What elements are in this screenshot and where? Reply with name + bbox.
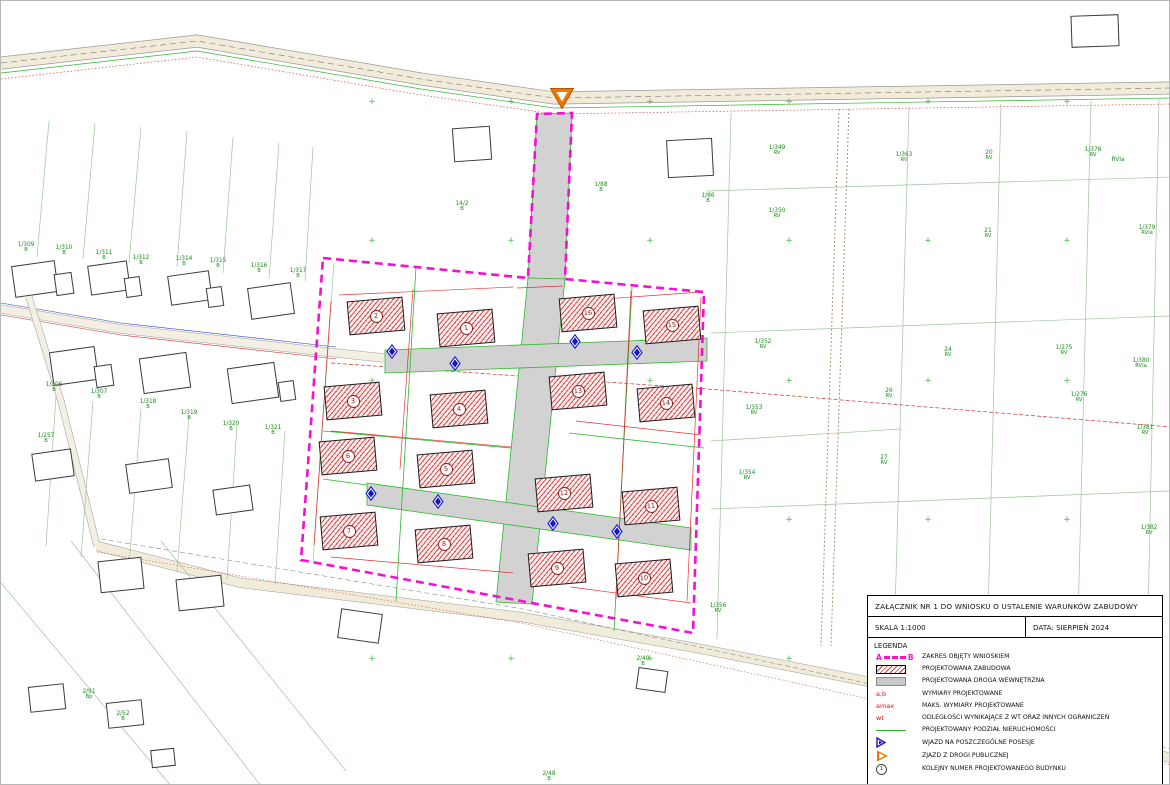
legend-item-label: KOLEJNY NUMER PROJEKTOWANEGO BUDYNKU [922,766,1156,773]
dashed-range-line [884,656,906,659]
legend-items: AB ZAKRES OBJĘTY WNIOSKIEM PROJEKTOWANA … [874,652,1156,775]
green-line-swatch [876,730,906,731]
legend-item: PROJEKTOWANA ZABUDOWA [874,664,1156,675]
legend-symbol: AB [874,653,922,662]
legend-item: PROJEKTOWANY PODZIAŁ NIERUCHOMOŚCI [874,725,1156,736]
legend-item-label: ODLEGŁOŚCI WYNIKAJĄCE Z WT ORAZ INNYCH O… [922,715,1156,722]
road-swatch [876,677,906,686]
legend-symbol: 1 [874,764,922,775]
legend-item: amax MAKS. WYMIARY PROJEKTOWANE [874,701,1156,712]
legend-symbol [874,737,922,748]
legend-symbol [874,665,922,674]
legend-symbol [874,730,922,731]
legend-item: wt ODLEGŁOŚCI WYNIKAJĄCE Z WT ORAZ INNYC… [874,713,1156,724]
legend-item: WJAZD NA POSZCZEGÓLNE POSESJE [874,737,1156,748]
legend-item-label: ZAKRES OBJĘTY WNIOSKIEM [922,654,1156,661]
scale-date-row: SKALA 1:1000 DATA: SIERPIEŃ 2024 [868,617,1162,638]
legend-item-label: WYMIARY PROJEKTOWANE [922,691,1156,698]
legend-item-label: ZJAZD Z DROGI PUBLICZNEJ [922,753,1156,760]
legend-symbol [874,677,922,686]
legend: LEGENDA AB ZAKRES OBJĘTY WNIOSKIEM PROJE… [868,638,1162,775]
legend-heading: LEGENDA [874,642,1156,650]
legend-symbol: amax [874,702,922,710]
legend-item-label: PROJEKTOWANA DROGA WEWNĘTRZNA [922,678,1156,685]
orange-exit-icon [876,750,889,762]
scale-label: SKALA 1:1000 [868,617,1026,637]
site-plan-canvas: 1 2 3 4 5 6 7 8 9 10 11 12 [0,0,1170,785]
blue-entry-icon [876,737,887,748]
drawing-title: ZAŁĄCZNIK NR 1 DO WNIOSKU O USTALENIE WA… [868,596,1162,617]
legend-item-label: WJAZD NA POSZCZEGÓLNE POSESJE [922,740,1156,747]
legend-symbol [874,750,922,762]
date-label: DATA: SIERPIEŃ 2024 [1026,617,1162,637]
legend-item-label: PROJEKTOWANY PODZIAŁ NIERUCHOMOŚCI [922,727,1156,734]
legend-symbol: wt [874,714,922,722]
hatch-swatch [876,665,906,674]
legend-item-label: MAKS. WYMIARY PROJEKTOWANE [922,703,1156,710]
legend-item: 1 KOLEJNY NUMER PROJEKTOWANEGO BUDYNKU [874,764,1156,775]
title-block: ZAŁĄCZNIK NR 1 DO WNIOSKU O USTALENIE WA… [867,595,1163,785]
public-road-exit-marker-icon [549,87,575,110]
legend-item: ZJAZD Z DROGI PUBLICZNEJ [874,750,1156,762]
legend-symbol: a,b [874,690,922,698]
legend-item: PROJEKTOWANA DROGA WEWNĘTRZNA [874,676,1156,687]
legend-item: AB ZAKRES OBJĘTY WNIOSKIEM [874,652,1156,663]
legend-item-label: PROJEKTOWANA ZABUDOWA [922,666,1156,673]
legend-item: a,b WYMIARY PROJEKTOWANE [874,689,1156,700]
